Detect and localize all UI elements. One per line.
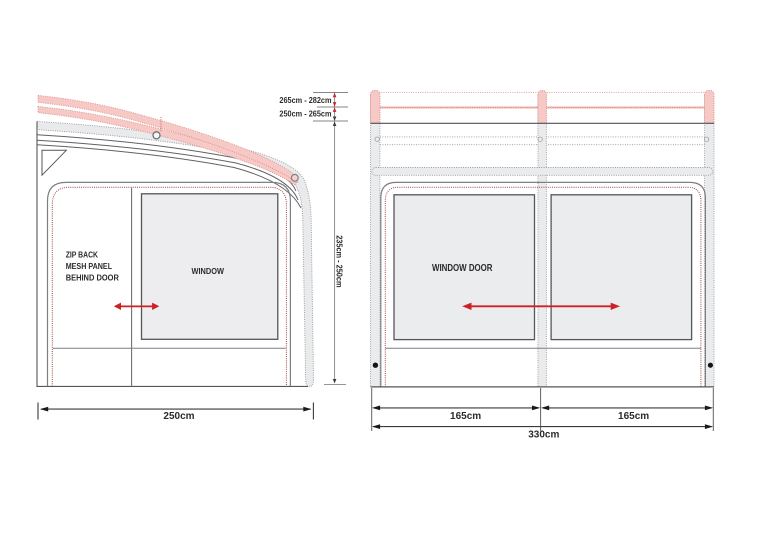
svg-text:BEHIND DOOR: BEHIND DOOR (66, 272, 120, 282)
svg-text:265cm - 282cm: 265cm - 282cm (279, 95, 331, 105)
svg-text:WINDOW DOOR: WINDOW DOOR (432, 263, 493, 274)
svg-text:250cm - 265cm: 250cm - 265cm (279, 109, 331, 119)
svg-text:165cm: 165cm (450, 411, 481, 422)
svg-text:ZIP BACK: ZIP BACK (66, 249, 99, 259)
svg-text:WINDOW: WINDOW (192, 266, 225, 276)
svg-text:250cm: 250cm (163, 411, 194, 422)
svg-text:330cm: 330cm (528, 429, 559, 440)
svg-text:MESH PANEL: MESH PANEL (66, 261, 112, 271)
svg-text:235cm - 250cm: 235cm - 250cm (335, 235, 345, 287)
svg-text:165cm: 165cm (618, 411, 649, 422)
